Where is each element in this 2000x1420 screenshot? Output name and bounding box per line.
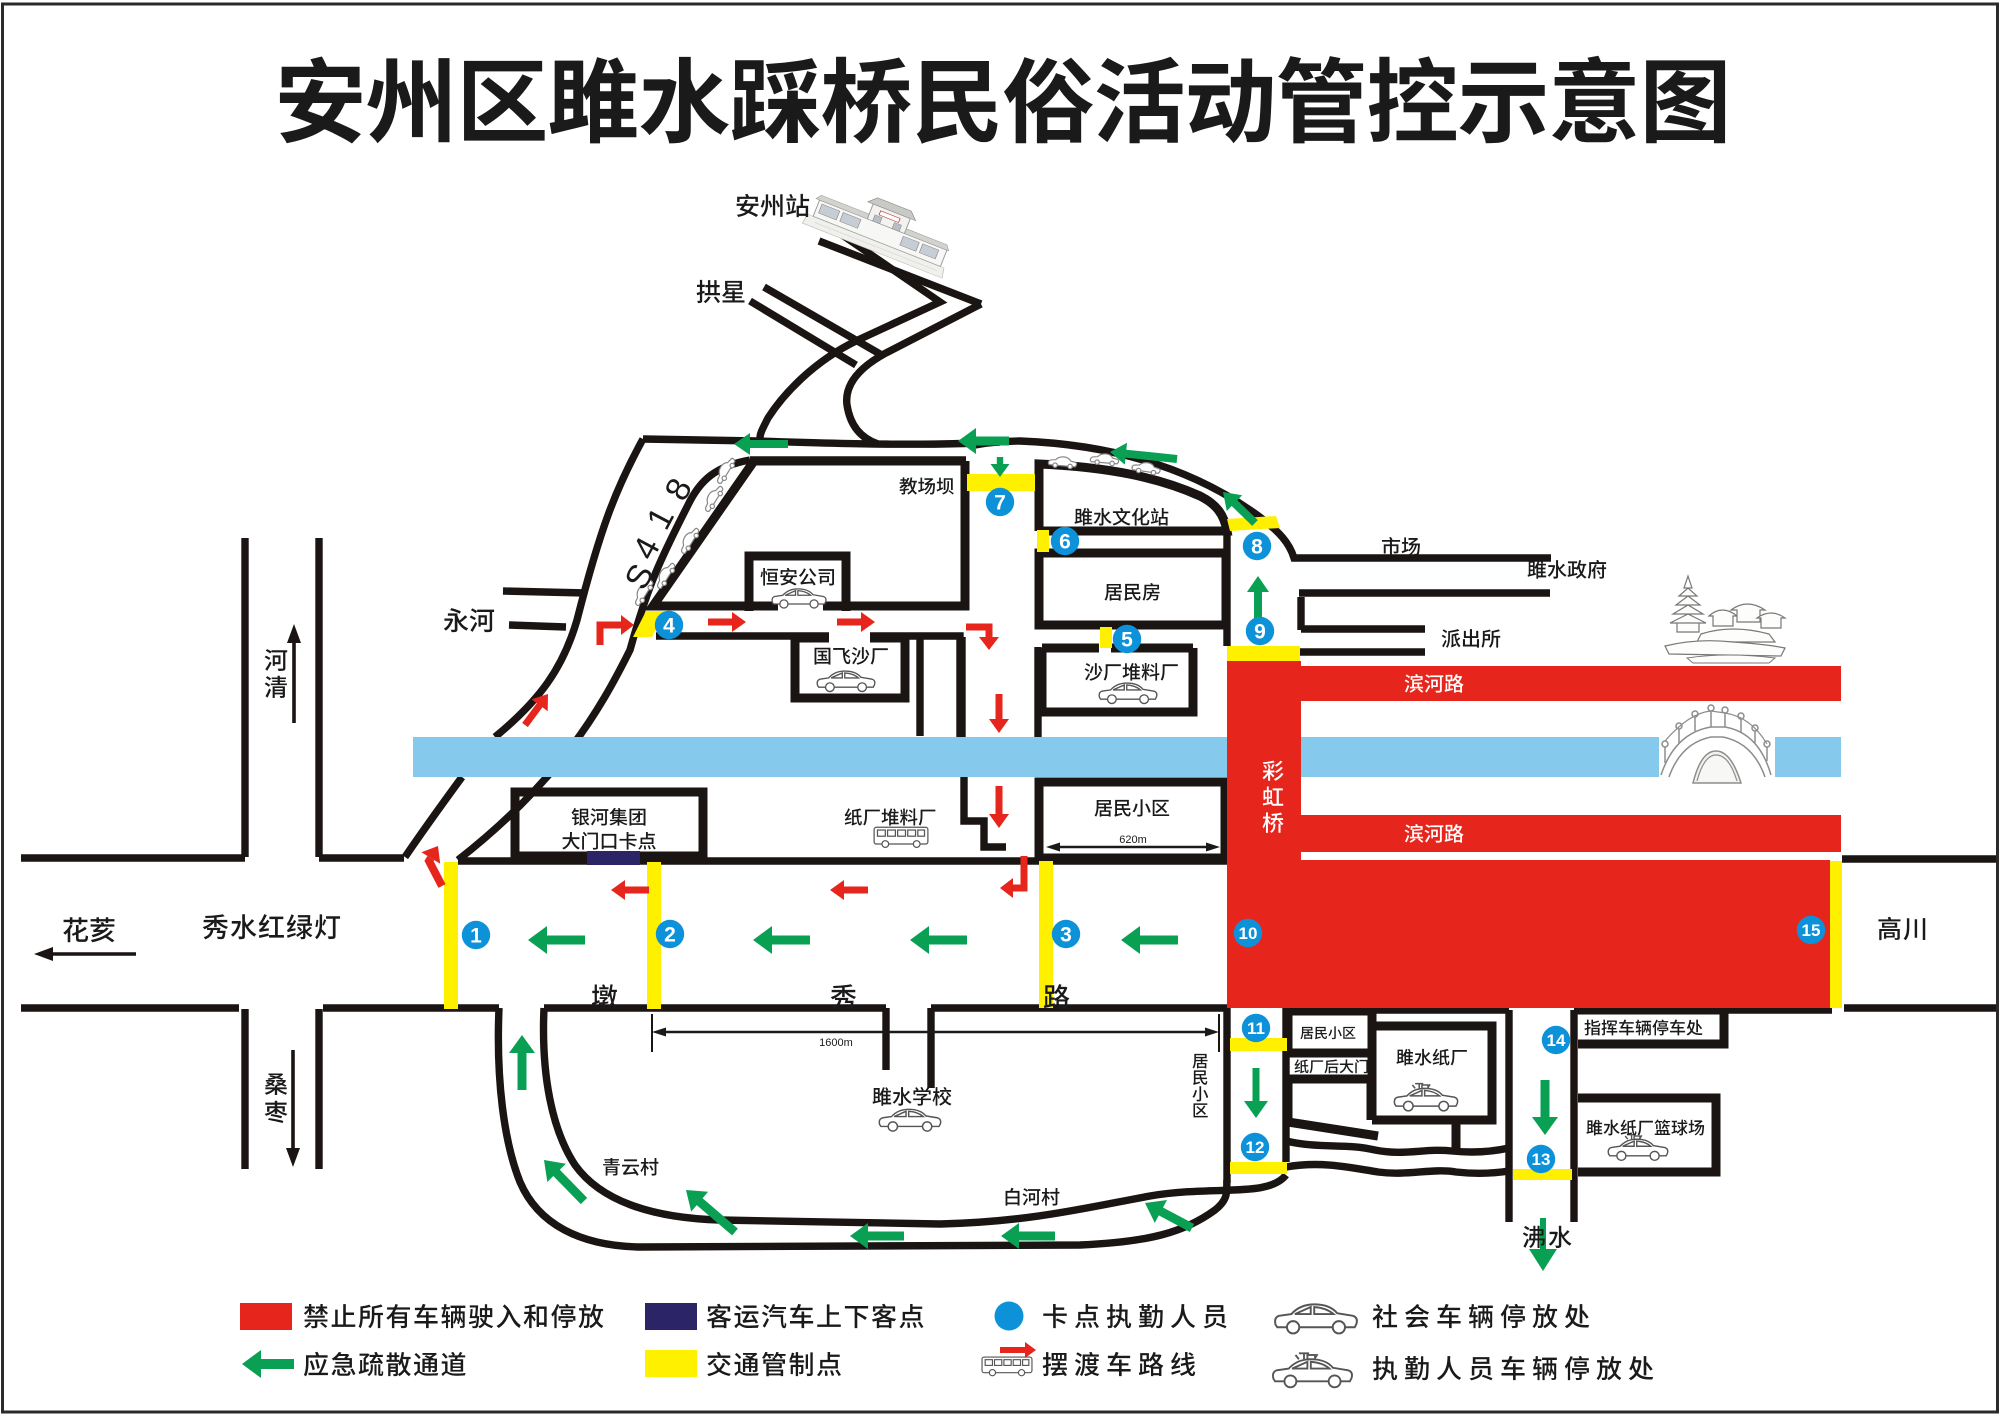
svg-text:620m: 620m [1119, 834, 1147, 846]
svg-text:7: 7 [994, 492, 1006, 515]
svg-text:12: 12 [1246, 1138, 1265, 1157]
svg-text:13: 13 [1532, 1150, 1551, 1169]
svg-text:5: 5 [1121, 629, 1133, 652]
svg-text:1600m: 1600m [819, 1037, 853, 1049]
svg-text:9: 9 [1254, 621, 1266, 644]
svg-text:10: 10 [1239, 924, 1258, 943]
svg-text:1: 1 [470, 925, 482, 948]
svg-text:3: 3 [1060, 924, 1072, 947]
svg-text:4: 4 [663, 615, 675, 638]
svg-text:2: 2 [664, 924, 676, 947]
svg-text:6: 6 [1059, 531, 1071, 554]
svg-text:14: 14 [1547, 1031, 1566, 1050]
svg-text:11: 11 [1247, 1019, 1265, 1038]
svg-text:15: 15 [1802, 921, 1821, 940]
svg-text:8: 8 [1251, 536, 1263, 559]
